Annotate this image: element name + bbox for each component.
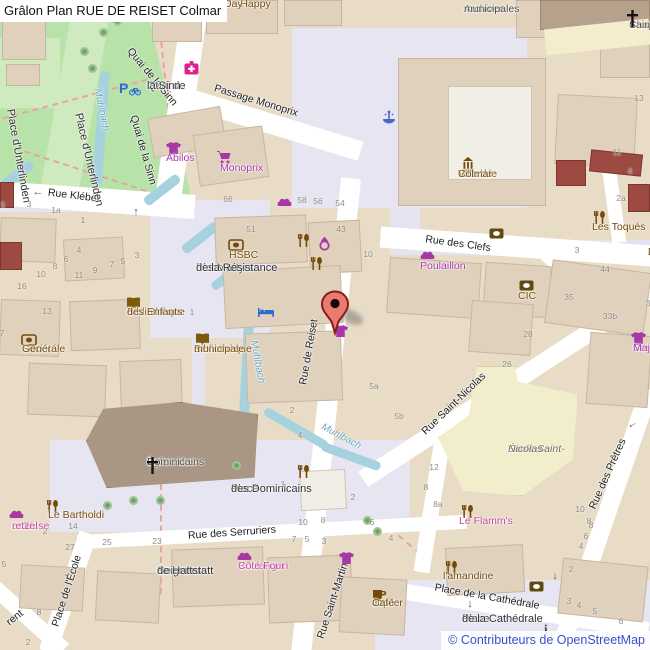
street-rent-partial: rent [4, 607, 26, 628]
house-number: 23 [152, 536, 161, 546]
house-number: 10 [363, 249, 372, 259]
house-number: 6 [584, 531, 589, 541]
house-number: 6 [64, 254, 69, 264]
street-quai-de-la-sinn-upper: Quai de la Sinn [124, 45, 180, 108]
house-number: 5 [305, 534, 310, 544]
street-passage-monoprix: Passage Monoprix [213, 82, 300, 119]
house-number: 13 [42, 306, 51, 316]
house-number: 5 [2, 559, 7, 569]
house-number: 3 [567, 596, 572, 606]
poi-l-amandine-label: l'amandine [443, 570, 493, 583]
water-muhlbach-3: Muhlbach [319, 422, 363, 453]
house-number: 2 [43, 526, 48, 536]
place-de-la-cathedrale-line: de la Cathédrale [462, 613, 543, 626]
place-d-unterlinden-1-line: Place d'Unterlinden [3, 108, 33, 204]
map-canvas[interactable]: Quai de la SinnQuai de la SinnPassage Mo… [0, 0, 650, 650]
house-number: 6 [370, 517, 375, 527]
place-des-dominicains-line: des Dominicains [231, 483, 312, 496]
house-number: 10 [575, 504, 584, 514]
water-muhlbach-1: Muhlbach [91, 88, 112, 133]
poi-hotel-de-ville-label: Colmar [458, 168, 492, 181]
house-number: 7 [110, 259, 115, 269]
house-number: 6 [619, 616, 624, 626]
house-number: 4 [628, 166, 633, 176]
house-number: 8a [433, 499, 442, 509]
street-place-de-la-cathedrale: Place de la Cathédrale [434, 582, 541, 613]
house-number: 1 [81, 215, 86, 225]
house-number: 5a [369, 381, 378, 391]
house-number: 2a [616, 193, 625, 203]
poi-cic-label: CIC [518, 290, 536, 303]
house-number: 14 [68, 521, 77, 531]
house-number: 2 [290, 405, 295, 415]
house-number: 4 [298, 430, 303, 440]
house-number: 35 [564, 292, 573, 302]
house-number: 5b [394, 411, 403, 421]
house-number: 8 [53, 261, 58, 271]
house-number: 33b [603, 311, 617, 321]
place-des-martyrs-line: de la Résistance [196, 262, 277, 275]
house-number: 11 [613, 147, 622, 157]
house-number: 5 [121, 256, 126, 266]
osm-attribution-link[interactable]: © Contributeurs de OpenStreetMap [441, 631, 650, 650]
house-number: 12 [429, 462, 438, 472]
place-cathedrale-pointer-arrow: ↓ [467, 598, 473, 610]
house-number: 9 [93, 265, 98, 275]
house-number: 4 [579, 541, 584, 551]
house-number: 13 [634, 93, 643, 103]
poi-le-flamms-label: Le Flamm's [459, 515, 513, 528]
location-marker-pin[interactable] [319, 290, 351, 336]
svg-text:P: P [119, 80, 128, 96]
poi-monoprix-label: Monoprix [220, 162, 263, 175]
house-number: 43 [336, 224, 345, 234]
house-number: 1a [51, 205, 60, 215]
house-number: 44 [600, 264, 609, 274]
street-rue-des-serruriers: Rue des Serruriers [188, 524, 277, 543]
street-rue-saint-nicolas: Rue Saint-Nicolas [419, 370, 488, 437]
house-number: 16 [17, 281, 26, 291]
water-muhlbach-2: Muhlbach [247, 340, 266, 385]
house-number: 8 [587, 516, 592, 526]
house-number: 1 [190, 307, 195, 317]
house-number: 3 [322, 536, 327, 546]
poi-societe-generale-label: Générale [22, 343, 65, 356]
house-number: 58 [297, 195, 306, 205]
street-place-de-l-ecole: Place de l'École [50, 554, 85, 629]
poi-poulaillon-label: Poulaillon [420, 260, 466, 273]
house-number: 8 [321, 515, 326, 525]
oneway-arrow-cathedrale: ↓ [552, 570, 558, 582]
house-number: 3 [135, 250, 140, 260]
house-number: 10 [298, 517, 307, 527]
house-number: 8 [37, 607, 42, 617]
street-rue-saint-martin: Rue Saint-Martin [315, 562, 351, 641]
ecole-saint-nicolas-line: Nicolas [508, 443, 542, 456]
house-number: 3 [27, 199, 32, 209]
oneway-arrow-pretres: ← [624, 416, 640, 432]
house-number: 4 [77, 245, 82, 255]
house-number: 5 [593, 606, 598, 616]
house-number: 10 [36, 269, 45, 279]
house-number: 2 [351, 492, 356, 502]
house-number: 54 [335, 198, 344, 208]
street-rue-de-reiset: Rue de Reiset [297, 318, 321, 386]
house-number: 2 [569, 564, 574, 574]
street-quai-de-la-sinn-lower: Quai de la Sinn [127, 114, 159, 187]
oneway-arrow-kleber: ← [33, 186, 44, 198]
house-number: 7 [292, 534, 297, 544]
poi-les-toques-label: Les Toqués [592, 221, 646, 234]
house-number: 3 [646, 298, 650, 308]
house-number: 2 [26, 637, 31, 647]
house-number: 5 [1, 200, 6, 210]
page-title: Grâlon Plan RUE DE REISET Colmar [0, 0, 227, 22]
house-number: 66 [223, 194, 232, 204]
poi-le-bartholdi-label: Le Bartholdi [48, 509, 104, 522]
house-number: 25 [102, 537, 111, 547]
house-number: 1 [281, 479, 286, 489]
poi-jupiler-cafe-label: Café [372, 597, 394, 610]
house-number: 4 [389, 533, 394, 543]
poi-shop-partial-left-label: retzel [12, 520, 38, 533]
house-number: 51 [246, 224, 255, 234]
poi-bibliotheque-des-enfants-label: des Enfants [127, 306, 182, 319]
house-number: 8 [424, 482, 429, 492]
house-number: 56 [313, 196, 322, 206]
archives-municipales-line: municipales [464, 3, 519, 16]
house-number: 4 [577, 600, 582, 610]
house-number: 11 [75, 270, 84, 280]
house-number: 28 [523, 329, 532, 339]
poi-bibliotheque-municipale-label: municipale [194, 343, 244, 356]
house-number: 26 [502, 359, 511, 369]
poi-sergent-major-label: Major [633, 342, 650, 355]
house-number: 27 [65, 542, 74, 552]
house-number: 3 [575, 245, 580, 255]
cour-des-seigneurs-de-hattstatt-line: de Hattstatt [157, 565, 213, 578]
quai-de-la-sinn-two-line-line: la Sinn [147, 80, 181, 93]
poi-abilos-label: Abilos [166, 152, 195, 165]
house-number: 7 [0, 328, 4, 338]
poi-hsbc-label: HSBC [229, 249, 258, 262]
poi-boulangerie-cote-four-label: Côte Four [238, 560, 285, 573]
street-rue-des-pretres: Rue des Prêtres [587, 437, 629, 511]
oneway-arrow-sinn: ↑ [133, 206, 139, 218]
